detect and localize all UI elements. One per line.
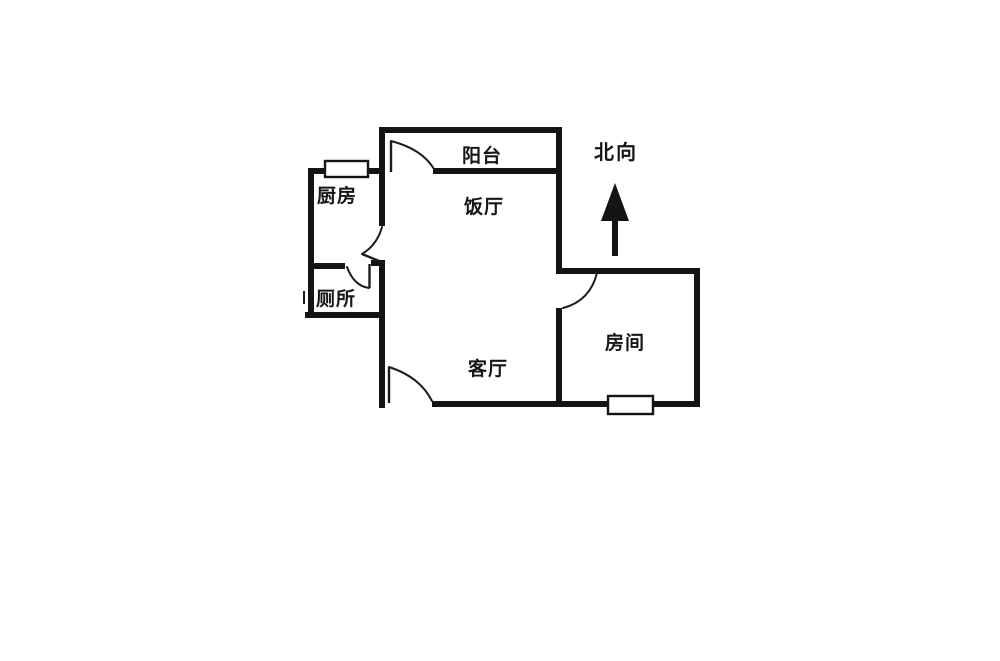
bedroom-window-icon — [608, 396, 653, 414]
north-arrow-shaft — [612, 218, 618, 256]
north-arrow-icon — [601, 183, 629, 256]
wall-left — [308, 168, 314, 318]
balcony-door-arc — [391, 141, 434, 169]
wall-center-upper — [379, 127, 385, 226]
room-label-bedroom: 房间 — [605, 334, 645, 353]
wall-balcony-bottom — [433, 168, 561, 174]
kitchen-window-icon — [325, 161, 368, 177]
room-label-dining: 饭厅 — [464, 198, 504, 217]
wall-bedroom-right — [694, 268, 700, 407]
north-direction-label: 北向 — [594, 142, 638, 162]
wall-center-lower — [379, 263, 385, 408]
dining-door-arc — [362, 227, 382, 254]
toilet-door-arc — [347, 267, 369, 288]
wall-right-upper — [556, 127, 562, 273]
wall-balcony-top — [381, 127, 561, 133]
room-label-living: 客厅 — [468, 360, 508, 379]
entrance-door-arc — [389, 367, 432, 401]
wall-bedroom-left — [556, 308, 562, 407]
room-label-balcony: 阳台 — [462, 147, 502, 166]
wall-bottom — [432, 401, 700, 407]
room-label-kitchen: 厨房 — [317, 187, 357, 206]
floorplan-canvas — [0, 0, 1000, 661]
north-arrow-head — [601, 183, 629, 221]
wall-bedroom-top — [556, 268, 700, 274]
wall-tick-left — [303, 291, 305, 304]
room-label-toilet: 厕所 — [316, 290, 356, 309]
wall-toilet-bottom — [305, 312, 385, 318]
wall-kitchen-toilet-divider — [308, 263, 345, 269]
floorplan-page: 厨房 厕所 阳台 饭厅 客厅 房间 北向 — [0, 0, 1000, 661]
bedroom-door-arc — [563, 273, 597, 308]
